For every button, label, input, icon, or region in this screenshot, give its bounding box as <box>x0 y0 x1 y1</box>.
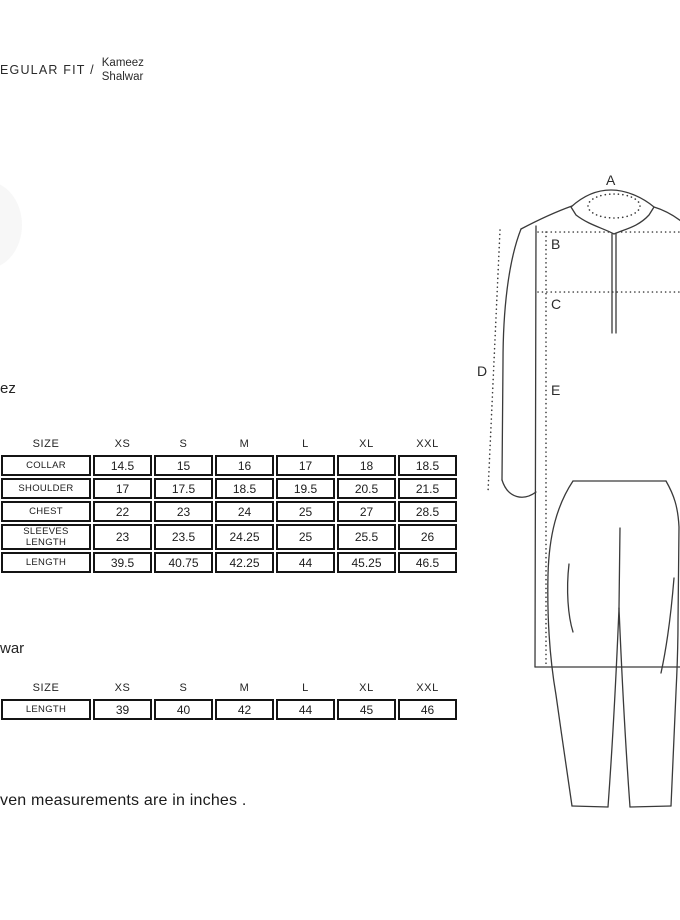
row-label: LENGTH <box>1 699 91 720</box>
table-row: LENGTH 39.5 40.75 42.25 44 45.25 46.5 <box>1 552 457 573</box>
table-row: COLLAR 14.5 15 16 17 18 18.5 <box>1 455 457 476</box>
table-cell: 23.5 <box>154 524 213 550</box>
table-cell: 25 <box>276 524 335 550</box>
column-header: XS <box>93 682 152 697</box>
table-cell: 40.75 <box>154 552 213 573</box>
table-row: SHOULDER 17 17.5 18.5 19.5 20.5 21.5 <box>1 478 457 499</box>
measurement-unit-note: ven measurements are in inches . <box>0 792 247 810</box>
column-header: S <box>154 438 213 453</box>
kameez-collar <box>571 190 654 234</box>
fit-type-label: EGULAR FIT / <box>0 63 95 77</box>
collar-opening-dotted <box>588 194 640 218</box>
table-cell: 42.25 <box>215 552 274 573</box>
shalwar-left-inseam <box>608 608 619 807</box>
column-header: L <box>276 438 335 453</box>
kameez-sleeve-cuff <box>502 480 536 497</box>
table-cell: 15 <box>154 455 213 476</box>
dim-label-e: E <box>551 382 560 398</box>
product-name-line1: Kameez <box>102 56 144 70</box>
shalwar-size-table: SIZE XS S M L XL XXL LENGTH 39 40 42 44 … <box>0 680 459 722</box>
measure-line-d-sleeve <box>488 230 500 492</box>
table-cell: 45 <box>337 699 396 720</box>
table-cell: 17.5 <box>154 478 213 499</box>
shalwar-sketch <box>548 481 679 807</box>
dim-label-b: B <box>551 236 560 252</box>
table-cell: 16 <box>215 455 274 476</box>
table-header-row: SIZE XS S M L XL XXL <box>1 682 457 697</box>
column-header: XL <box>337 682 396 697</box>
table-cell: 23 <box>93 524 152 550</box>
kameez-right-shoulder <box>654 207 680 221</box>
table-cell: 44 <box>276 552 335 573</box>
table-cell: 46.5 <box>398 552 457 573</box>
column-header: M <box>215 438 274 453</box>
shalwar-right-outline <box>666 481 679 806</box>
shalwar-right-inseam <box>619 608 630 807</box>
dim-label-d: D <box>477 363 487 379</box>
column-header: XS <box>93 438 152 453</box>
table-cell: 45.25 <box>337 552 396 573</box>
table-cell: 42 <box>215 699 274 720</box>
table-cell: 39 <box>93 699 152 720</box>
shalwar-left-outline <box>548 481 573 806</box>
row-label: SLEEVES LENGTH <box>1 524 91 550</box>
size-chart-page: EGULAR FIT / Kameez Shalwar ez SIZE XS S… <box>0 0 680 920</box>
table-row: CHEST 22 23 24 25 27 28.5 <box>1 501 457 522</box>
column-header: SIZE <box>1 682 91 697</box>
table-cell: 26 <box>398 524 457 550</box>
table-row: LENGTH 39 40 42 44 45 46 <box>1 699 457 720</box>
table-cell: 21.5 <box>398 478 457 499</box>
table-header-row: SIZE XS S M L XL XXL <box>1 438 457 453</box>
kameez-sleeve-outer <box>502 229 521 480</box>
dim-label-c: C <box>551 296 561 312</box>
product-name: Kameez Shalwar <box>102 56 144 84</box>
kameez-body-left-edge <box>535 226 536 667</box>
column-header: XL <box>337 438 396 453</box>
table-cell: 20.5 <box>337 478 396 499</box>
table-cell: 24 <box>215 501 274 522</box>
kameez-size-table: SIZE XS S M L XL XXL COLLAR 14.5 15 16 1… <box>0 436 459 575</box>
watermark-logo <box>0 181 22 269</box>
table-cell: 28.5 <box>398 501 457 522</box>
table-cell: 39.5 <box>93 552 152 573</box>
column-header: XXL <box>398 682 457 697</box>
table-cell: 44 <box>276 699 335 720</box>
shalwar-right-hem <box>630 806 671 807</box>
shalwar-fold-left <box>568 564 573 632</box>
table-cell: 14.5 <box>93 455 152 476</box>
table-cell: 25 <box>276 501 335 522</box>
table-cell: 17 <box>93 478 152 499</box>
column-header: SIZE <box>1 438 91 453</box>
table-cell: 27 <box>337 501 396 522</box>
shalwar-fold-right <box>661 578 674 673</box>
table-row: SLEEVES LENGTH 23 23.5 24.25 25 25.5 26 <box>1 524 457 550</box>
table-cell: 19.5 <box>276 478 335 499</box>
row-label: COLLAR <box>1 455 91 476</box>
row-label: LENGTH <box>1 552 91 573</box>
row-label: CHEST <box>1 501 91 522</box>
shalwar-left-hem <box>572 806 608 807</box>
product-name-line2: Shalwar <box>102 70 144 84</box>
kameez-left-shoulder <box>521 206 572 229</box>
shalwar-center-crease <box>619 528 620 608</box>
table-cell: 24.25 <box>215 524 274 550</box>
column-header: XXL <box>398 438 457 453</box>
table-cell: 46 <box>398 699 457 720</box>
table-cell: 18.5 <box>215 478 274 499</box>
table-cell: 17 <box>276 455 335 476</box>
kameez-section-heading: ez <box>0 380 16 397</box>
column-header: L <box>276 682 335 697</box>
page-header: EGULAR FIT / Kameez Shalwar <box>0 56 144 84</box>
row-label: SHOULDER <box>1 478 91 499</box>
table-cell: 23 <box>154 501 213 522</box>
table-cell: 18.5 <box>398 455 457 476</box>
table-cell: 22 <box>93 501 152 522</box>
column-header: S <box>154 682 213 697</box>
dim-label-a: A <box>606 172 616 188</box>
shalwar-section-heading: war <box>0 640 24 657</box>
kameez-sketch <box>502 190 680 667</box>
table-cell: 40 <box>154 699 213 720</box>
column-header: M <box>215 682 274 697</box>
table-cell: 25.5 <box>337 524 396 550</box>
table-cell: 18 <box>337 455 396 476</box>
